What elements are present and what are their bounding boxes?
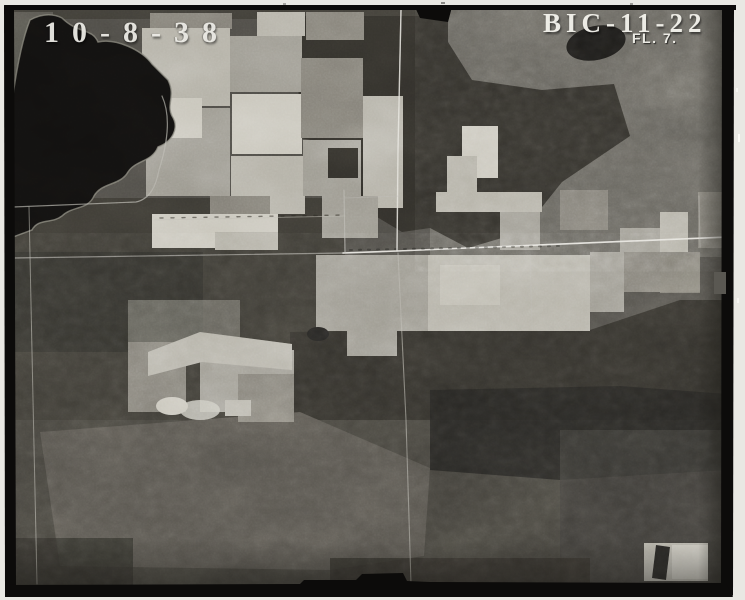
dust-speck bbox=[738, 134, 740, 142]
photo-edge-left bbox=[4, 5, 16, 590]
dust-speck bbox=[630, 3, 633, 5]
photo-edge-right bbox=[721, 5, 734, 596]
photo-paper: 10-8-38 BIC-11-22 FL. 7. bbox=[0, 0, 745, 600]
dust-speck bbox=[736, 88, 738, 92]
edge-notch bbox=[714, 272, 726, 294]
date-stamp: 10-8-38 bbox=[44, 16, 230, 50]
dust-speck bbox=[441, 2, 445, 4]
dust-speck bbox=[283, 3, 286, 5]
aerial-photograph bbox=[0, 0, 745, 600]
photo-index-label: BIC-11-22 bbox=[543, 8, 707, 39]
dust-speck bbox=[737, 298, 739, 303]
film-grain-overlay bbox=[13, 9, 727, 586]
flight-number-label: FL. 7. bbox=[632, 30, 678, 46]
